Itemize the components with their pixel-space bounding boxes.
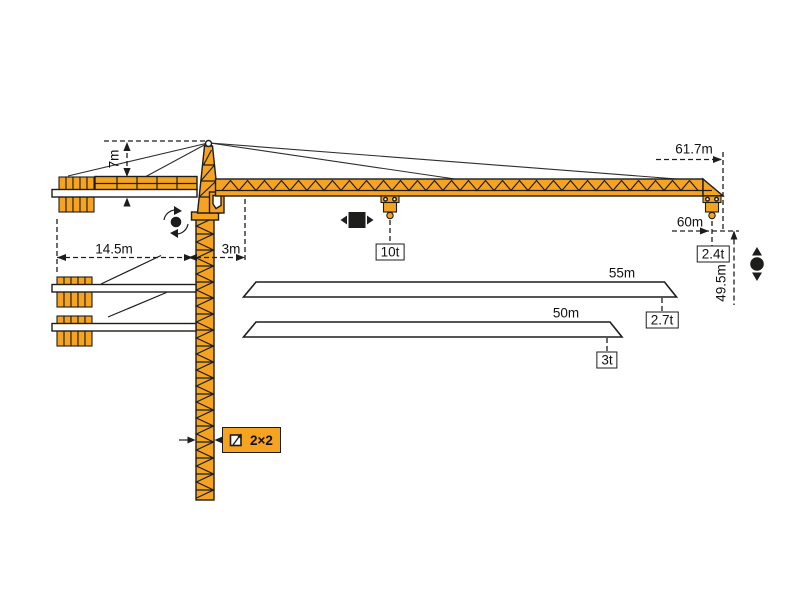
tower-head-height-label: 7m <box>107 150 121 169</box>
slewing-icon <box>164 206 188 238</box>
tip-load-55m-box: 2.7t <box>646 312 679 329</box>
max-load-box: 10t <box>376 244 405 261</box>
trolley-mid <box>381 196 399 219</box>
trolley-travel-icon <box>341 212 374 228</box>
counter-jib-radius-label: 14.5m <box>95 242 133 256</box>
hook-mid <box>387 212 393 218</box>
counter-jib-tie-bar <box>52 190 197 198</box>
tower-mast <box>196 216 214 500</box>
hook-tip <box>709 212 715 218</box>
main-jib <box>216 179 724 196</box>
counter-jib <box>52 177 197 213</box>
tower-section-label: 2×2 <box>250 433 273 448</box>
tip-load-box: 2.4t <box>697 246 730 263</box>
jib-variant-50m <box>244 322 623 337</box>
min-radius-label: 3m <box>222 242 241 256</box>
jib-variant-50m-label: 50m <box>553 306 579 320</box>
jib-variant-55m <box>244 282 677 297</box>
pendant-lines <box>68 143 690 180</box>
crane-diagram: 7m 14.5m 3m 61.7m 60m 49.5m 55m 50m 10t … <box>0 0 800 600</box>
apex-pulley <box>206 141 212 147</box>
tower-section-icon <box>229 432 245 448</box>
jib-variant-55m-label: 55m <box>609 266 635 280</box>
hoisting-icon <box>750 247 764 281</box>
hook-height-label: 49.5m <box>714 264 728 302</box>
jib-tip-radius-label: 61.7m <box>675 142 713 156</box>
max-hook-radius-label: 60m <box>677 215 703 229</box>
counterweight-variant-b <box>52 316 196 346</box>
crane-drawing <box>0 0 800 600</box>
tip-load-50m-box: 3t <box>596 352 617 369</box>
counterweight-variant-a <box>52 277 196 307</box>
tower-section-box: 2×2 <box>222 427 281 453</box>
trolley-tip <box>703 196 721 219</box>
